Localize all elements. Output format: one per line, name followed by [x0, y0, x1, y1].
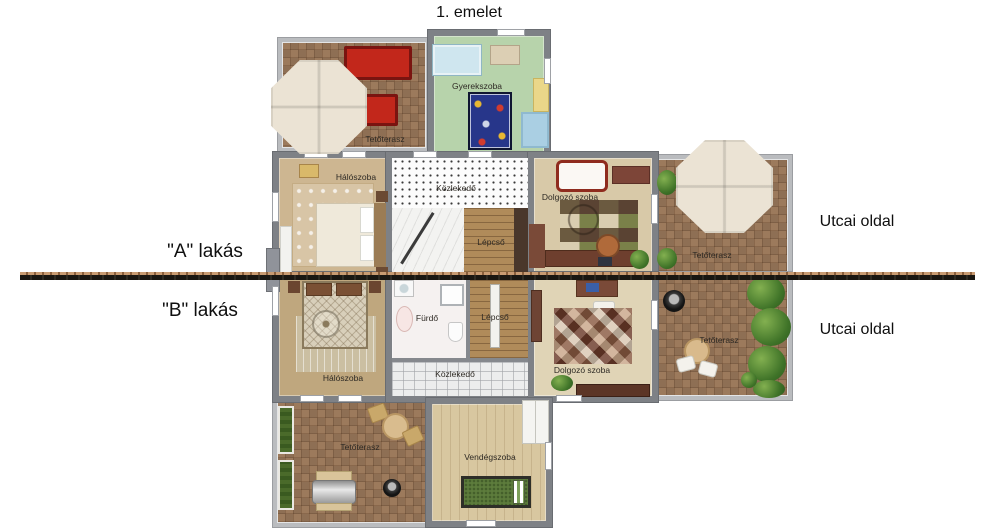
sink — [396, 306, 413, 332]
page-title: 1. emelet — [436, 4, 502, 22]
floor-plan: 1. emelet "A" lakás "B" lakás Utcai olda… — [0, 0, 1000, 531]
office-chair-a — [596, 234, 620, 258]
shelf-b — [576, 384, 650, 397]
room-label-terrace-right-b: Tetőterasz — [699, 335, 738, 345]
hall-a-closet — [514, 208, 528, 272]
play-rug — [468, 92, 512, 150]
shower — [440, 284, 464, 306]
apartment-b-label: "B" lakás — [162, 300, 238, 322]
room-label-hallway-a: Közlekedő — [436, 183, 476, 193]
metal-table — [312, 480, 356, 504]
toilet — [448, 322, 463, 342]
grill — [383, 479, 401, 497]
wardrobe-a — [280, 226, 292, 276]
side-desk — [529, 224, 545, 268]
plant — [657, 170, 677, 195]
pillow — [360, 235, 374, 261]
window — [651, 194, 658, 224]
window — [272, 286, 279, 316]
striped-pillow — [513, 480, 525, 504]
window — [466, 520, 496, 527]
room-label-bedroom-a: Hálószoba — [336, 172, 376, 182]
laptop-a — [598, 257, 612, 266]
window — [272, 192, 279, 222]
bush — [753, 380, 785, 398]
street-side-label-bottom: Utcai oldal — [820, 321, 895, 339]
plant — [657, 248, 677, 269]
plant — [551, 375, 573, 391]
room-label-terrace-right-a: Tetőterasz — [692, 250, 731, 260]
pillow-brown — [336, 283, 362, 296]
pillow-brown — [306, 283, 332, 296]
window — [651, 300, 658, 330]
ceiling-fan — [312, 310, 340, 338]
room-label-stairs-a: Lépcső — [477, 237, 504, 247]
room-label-bedroom-b: Hálószoba — [323, 373, 363, 383]
window — [413, 151, 437, 158]
study-b-rug — [554, 308, 632, 364]
room-label-study-b: Dolgozó szoba — [554, 365, 610, 375]
window — [544, 58, 551, 84]
wardrobe-b — [531, 290, 542, 342]
window — [342, 151, 366, 158]
laptop-b — [586, 283, 599, 292]
bench-seat — [316, 503, 352, 511]
window — [497, 29, 525, 36]
hallway-b-tiles — [392, 362, 528, 396]
apartment-divider-line — [20, 272, 975, 280]
room-label-terrace-top-left: Tetőterasz — [365, 134, 404, 144]
child-crib — [521, 112, 549, 148]
pillow — [360, 207, 374, 233]
desk-a — [545, 250, 640, 267]
red-sofa — [344, 46, 412, 80]
room-label-guest: Vendégszoba — [464, 452, 516, 462]
washing-machine — [394, 280, 414, 297]
bush-small — [741, 372, 757, 388]
bush — [747, 276, 785, 310]
room-label-hallway-b: Közlekedő — [435, 369, 475, 379]
planter — [278, 460, 294, 510]
room-label-stairs-b: Lépcső — [481, 312, 508, 322]
nightstand — [376, 191, 388, 202]
nightstand — [369, 281, 381, 293]
wardrobe-guest — [522, 400, 549, 444]
divider-shadow — [20, 275, 975, 280]
window — [556, 395, 582, 402]
window — [300, 395, 324, 402]
bush — [751, 308, 791, 346]
room-label-children: Gyerekszoba — [452, 81, 502, 91]
grill — [663, 290, 685, 312]
plant — [630, 250, 649, 269]
street-side-label-top: Utcai oldal — [820, 213, 895, 231]
nightstand — [288, 281, 300, 293]
bed-a-headboard — [374, 203, 386, 267]
room-label-terrace-bottom-left: Tetőterasz — [340, 442, 379, 452]
planter — [278, 406, 294, 454]
dresser — [490, 45, 520, 65]
bench — [299, 164, 319, 178]
window — [545, 442, 552, 470]
apartment-a-label: "A" lakás — [167, 241, 243, 263]
child-bed — [433, 45, 481, 75]
white-sofa — [556, 160, 608, 192]
room-label-study-a: Dolgozó szoba — [542, 192, 598, 202]
shelf-a — [612, 166, 650, 184]
room-label-bathroom: Fürdő — [416, 313, 438, 323]
window — [338, 395, 362, 402]
window — [468, 151, 492, 158]
